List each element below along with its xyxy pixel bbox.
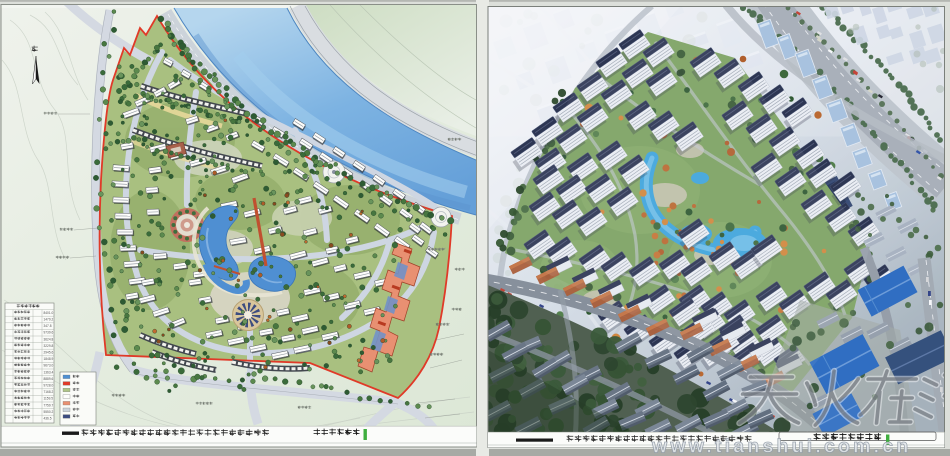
svg-text:9728.0: 9728.0 [44,384,54,388]
svg-text:1848.9: 1848.9 [44,357,54,361]
svg-text:436.5: 436.5 [44,417,52,421]
svg-text:9673.0: 9673.0 [44,364,54,368]
svg-text:1363.4: 1363.4 [44,370,54,374]
svg-text:9739.6: 9739.6 [44,331,54,335]
svg-text:1479.2: 1479.2 [44,318,54,322]
svg-text:8889.6: 8889.6 [44,377,54,381]
svg-text:7759.7: 7759.7 [44,403,54,407]
svg-text:3229.8: 3229.8 [44,344,54,348]
svg-text:7168.2: 7168.2 [44,390,54,394]
svg-text:2945.6: 2945.6 [44,351,54,355]
svg-text:8401.0: 8401.0 [44,311,54,315]
svg-text:5550.2: 5550.2 [44,410,54,414]
svg-text:1159.5: 1159.5 [44,397,54,401]
svg-text:347.8: 347.8 [44,324,52,328]
svg-text:3624.8: 3624.8 [44,337,54,341]
svg-text:www.tianshui.com.cn: www.tianshui.com.cn [651,436,911,456]
